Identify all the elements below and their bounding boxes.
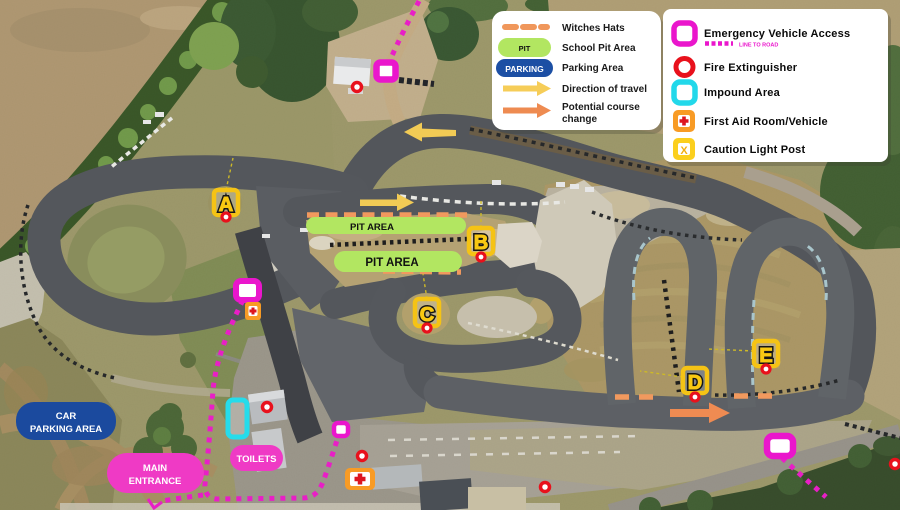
svg-text:PIT AREA: PIT AREA — [365, 257, 418, 269]
svg-text:Parking Area: Parking Area — [562, 63, 624, 74]
svg-text:Potential course: Potential course — [562, 102, 640, 113]
svg-text:PIT: PIT — [519, 44, 531, 53]
svg-text:PIT AREA: PIT AREA — [350, 222, 394, 233]
svg-text:Direction of travel: Direction of travel — [562, 84, 647, 95]
svg-text:TOILETS: TOILETS — [237, 454, 277, 465]
svg-text:PARKING AREA: PARKING AREA — [30, 424, 102, 435]
svg-text:D: D — [688, 372, 702, 394]
svg-text:LINE TO ROAD: LINE TO ROAD — [739, 43, 778, 49]
svg-text:Caution Light Post: Caution Light Post — [704, 144, 806, 156]
svg-text:CAR: CAR — [56, 411, 77, 422]
svg-text:Witches Hats: Witches Hats — [562, 23, 625, 34]
svg-text:MAIN: MAIN — [143, 463, 167, 474]
svg-text:change: change — [562, 114, 597, 125]
svg-text:Impound Area: Impound Area — [704, 87, 781, 99]
svg-text:Fire Extinguisher: Fire Extinguisher — [704, 62, 798, 74]
svg-text:First Aid Room/Vehicle: First Aid Room/Vehicle — [704, 116, 828, 128]
svg-text:School Pit Area: School Pit Area — [562, 43, 636, 54]
svg-text:ENTRANCE: ENTRANCE — [129, 476, 182, 487]
svg-text:PARKING: PARKING — [505, 64, 544, 74]
svg-text:X: X — [680, 145, 688, 157]
svg-text:Emergency Vehicle Access: Emergency Vehicle Access — [704, 28, 850, 40]
svg-text:B: B — [474, 232, 488, 254]
